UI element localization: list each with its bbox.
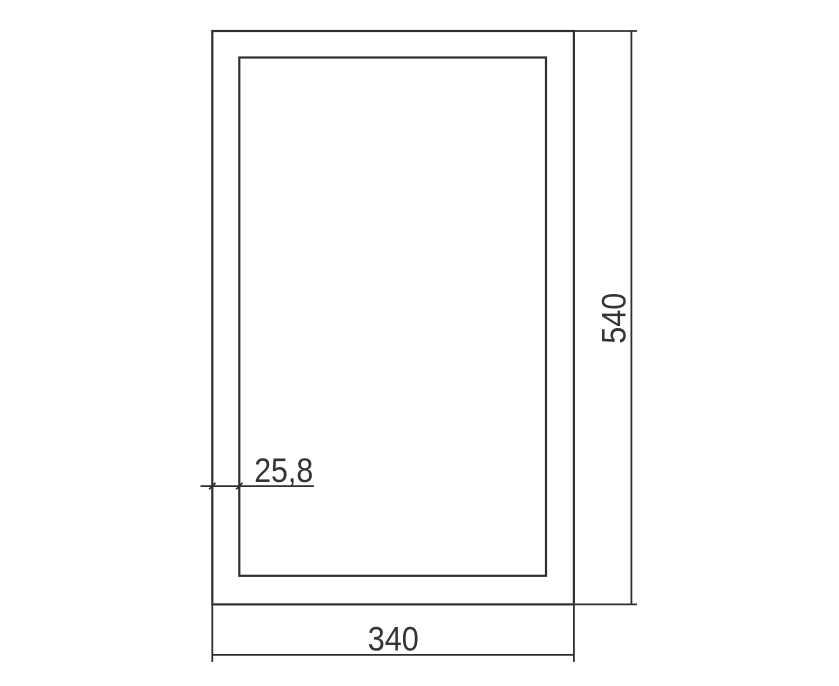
svg-text:340: 340 <box>368 621 419 659</box>
svg-text:540: 540 <box>596 293 634 344</box>
svg-text:25,8: 25,8 <box>254 452 313 490</box>
